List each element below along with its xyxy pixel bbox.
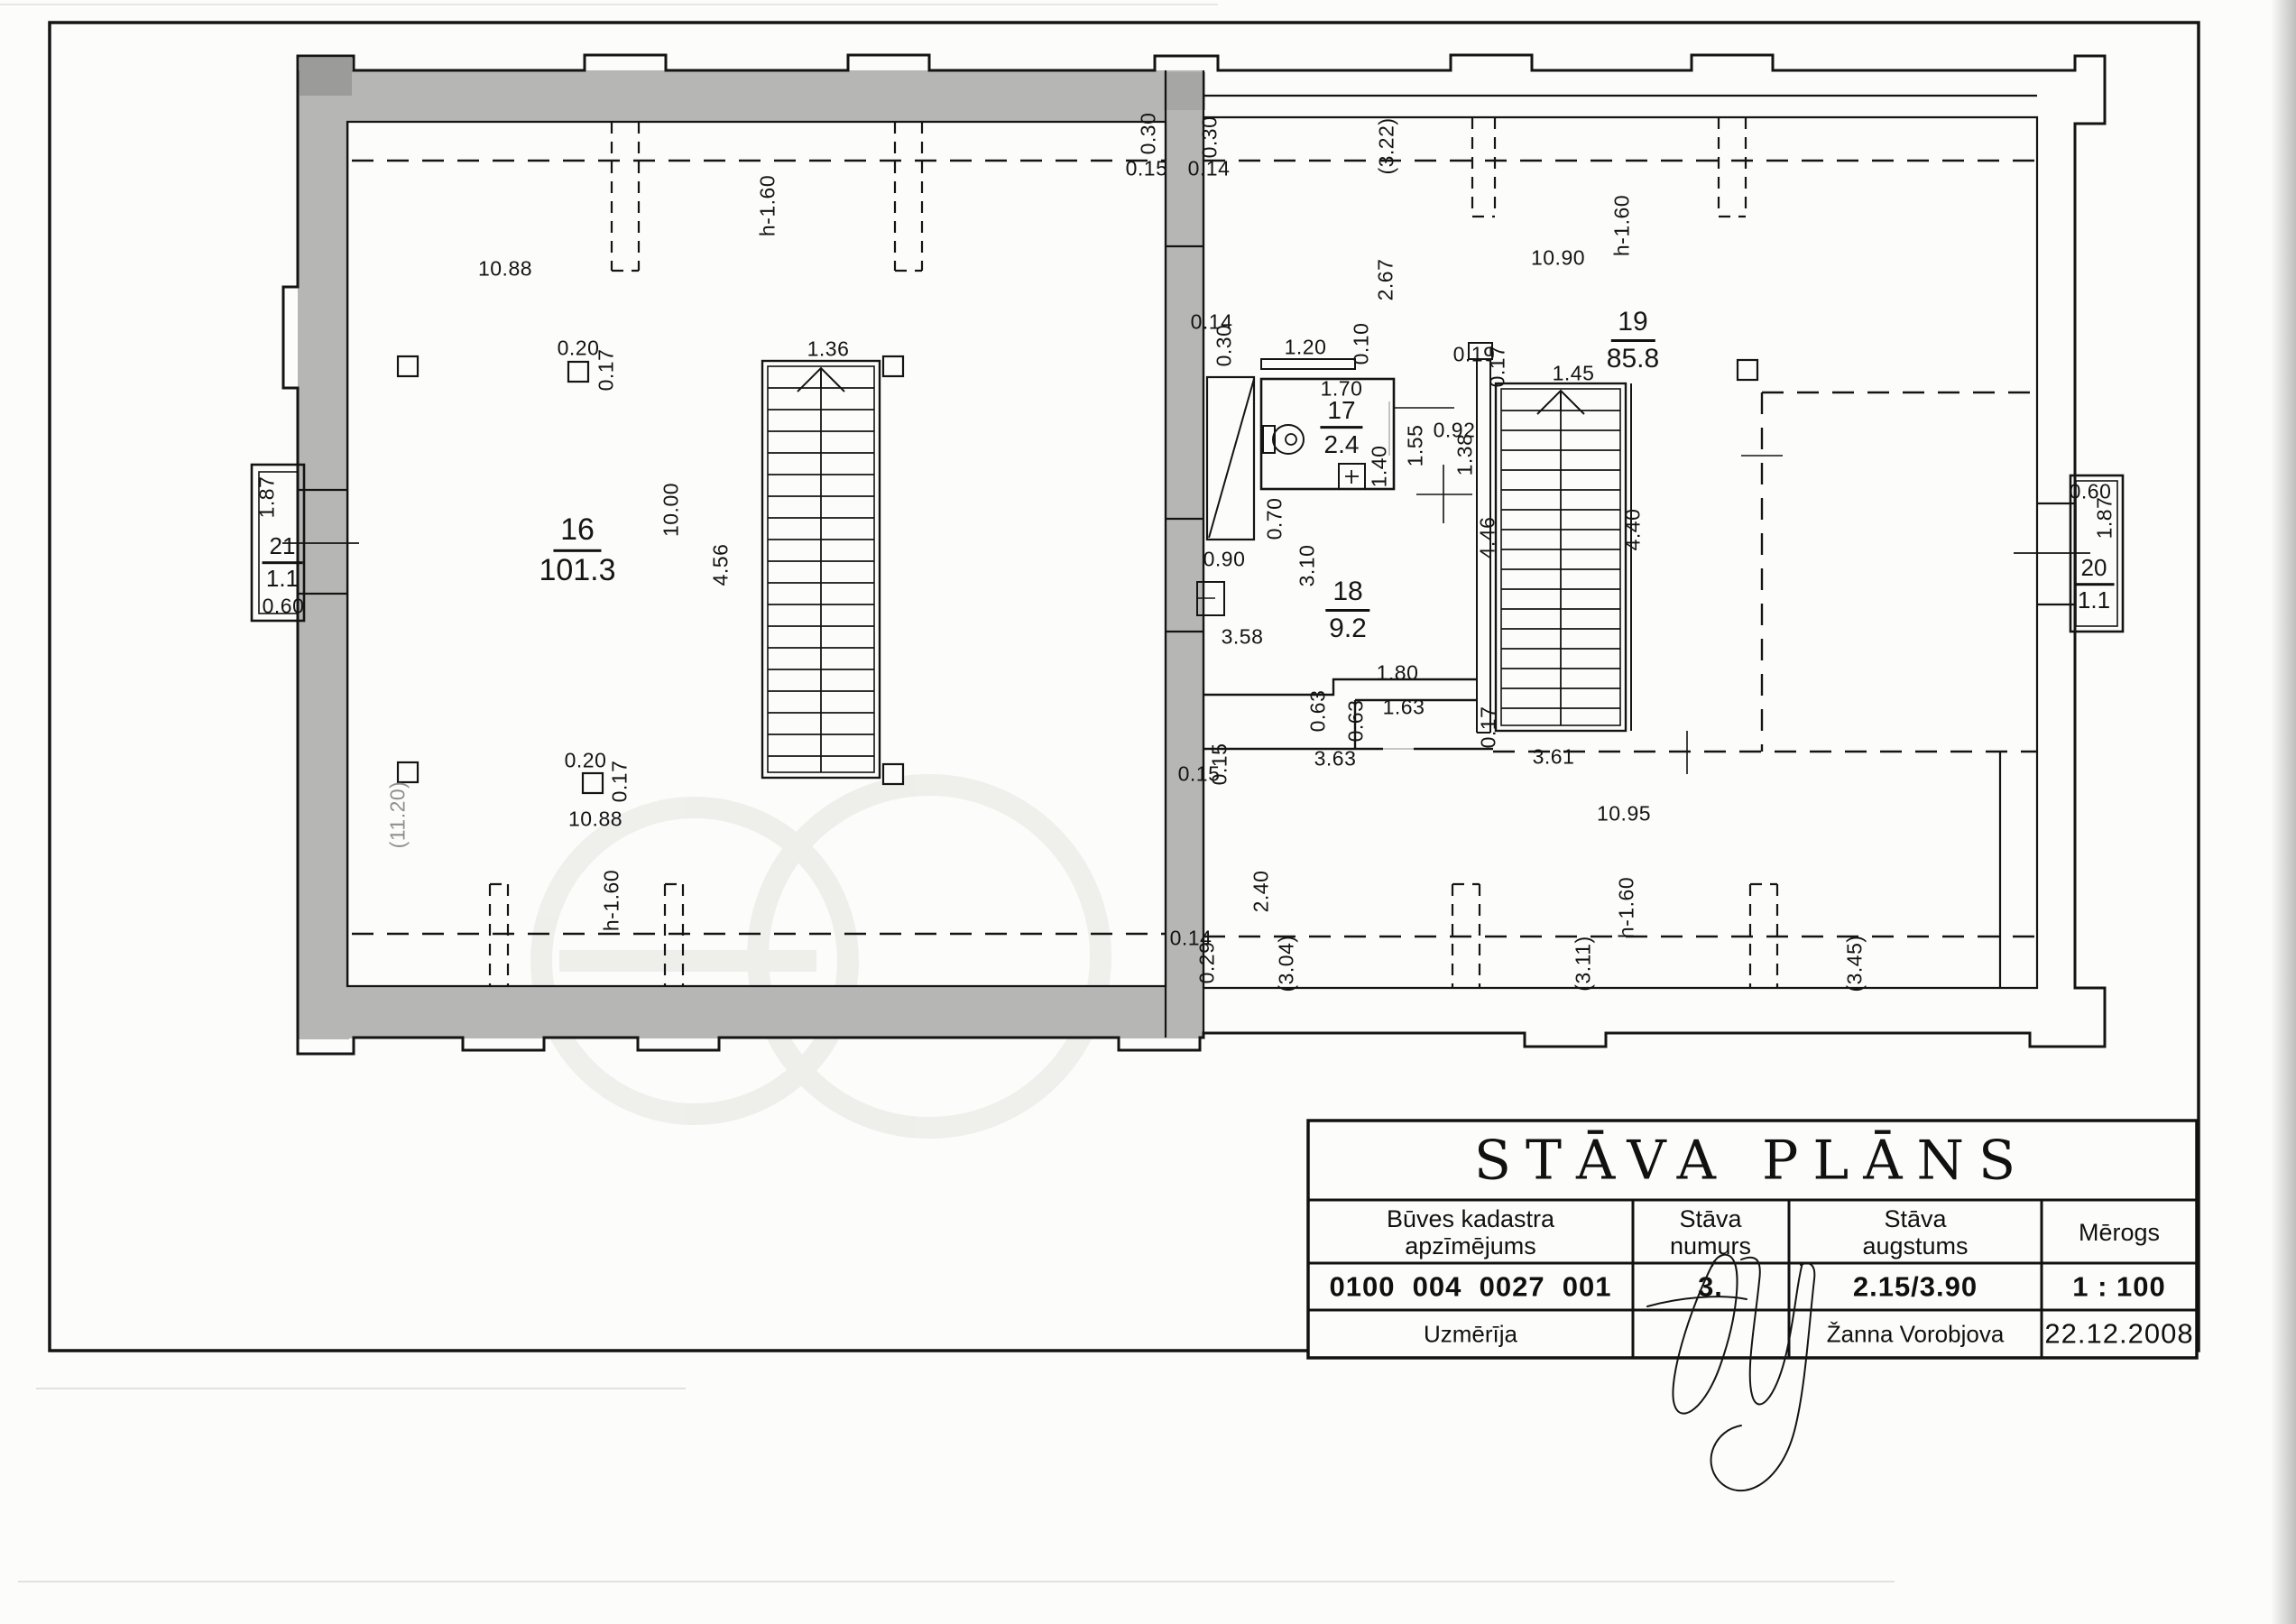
- signature: [0, 0, 2296, 1624]
- scanned-floor-plan-page: 10.88h-1.600.200.171.3610.004.560.200.17…: [0, 0, 2296, 1624]
